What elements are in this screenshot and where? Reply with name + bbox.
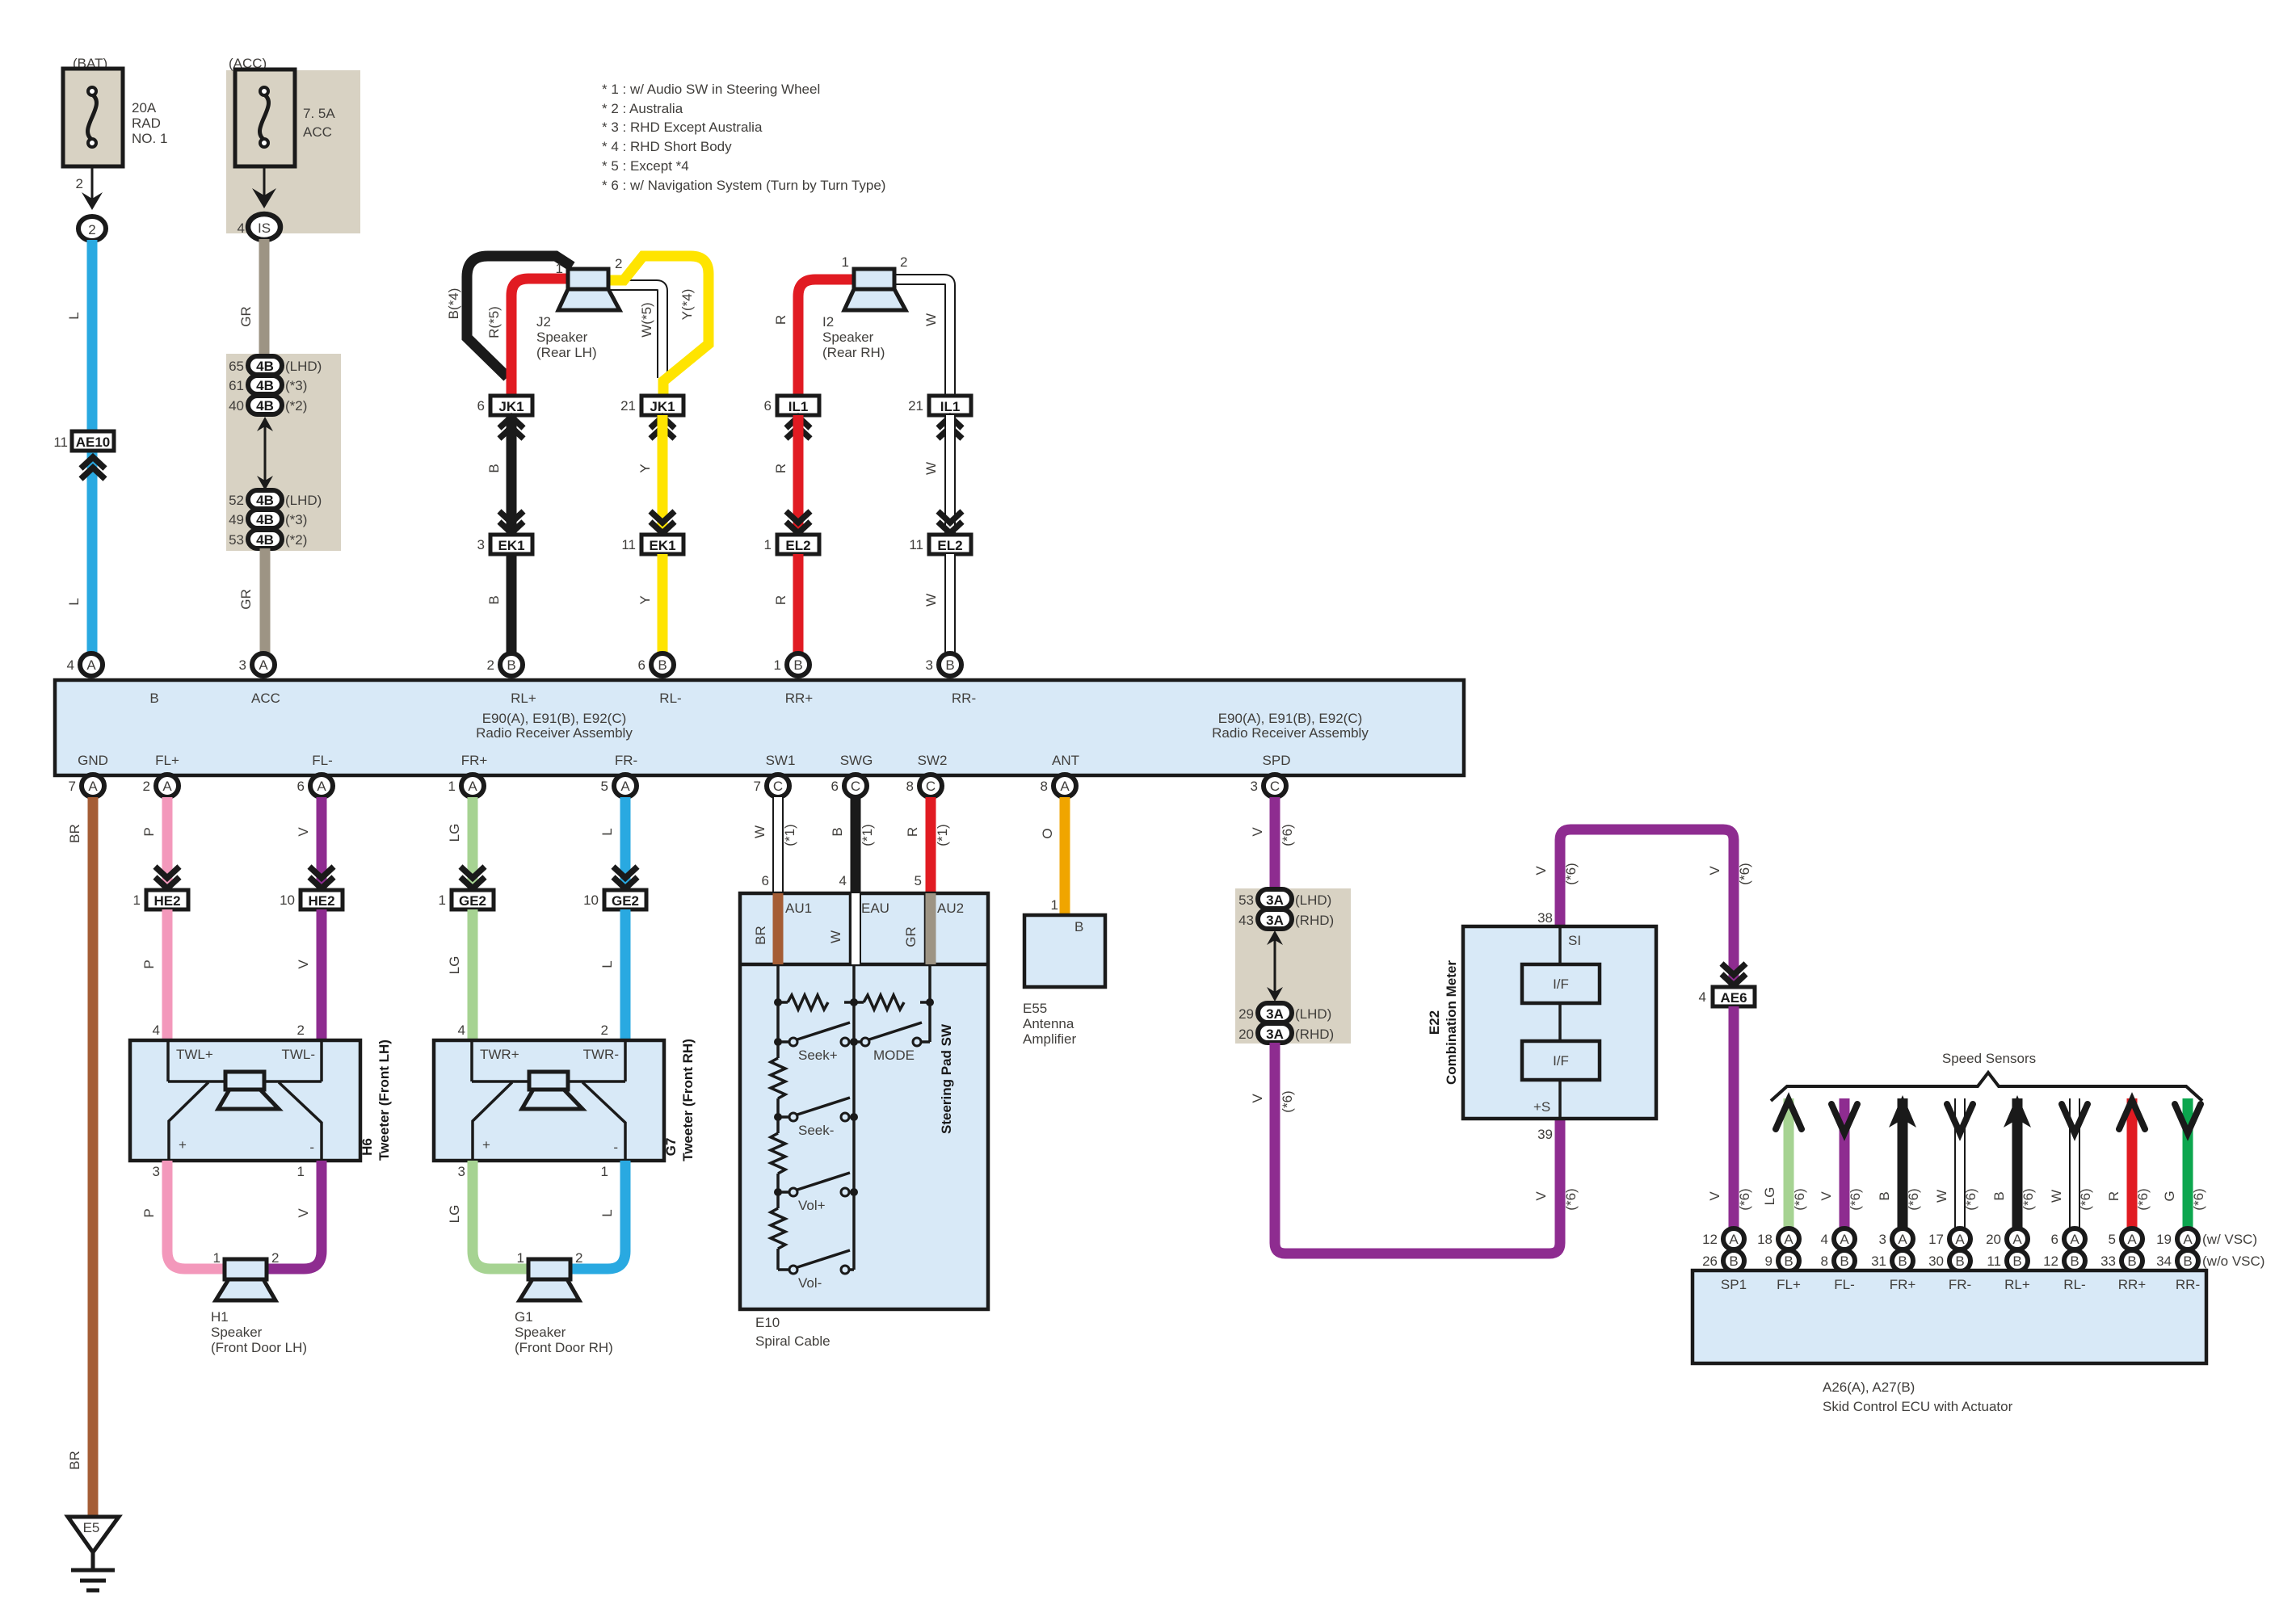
svg-text:(LHD): (LHD): [285, 493, 322, 508]
svg-text:4: 4: [238, 220, 245, 236]
svg-text:A: A: [1784, 1232, 1793, 1247]
svg-text:A: A: [2127, 1232, 2137, 1247]
svg-text:AU2: AU2: [937, 901, 964, 916]
svg-text:40: 40: [229, 398, 244, 414]
svg-text:Speaker: Speaker: [515, 1325, 566, 1340]
svg-text:* 1 : w/ Audio SW in Steering: * 1 : w/ Audio SW in Steering Wheel: [602, 82, 820, 97]
svg-text:(*1): (*1): [782, 824, 797, 846]
svg-text:ACC: ACC: [251, 691, 280, 706]
svg-text:11: 11: [909, 537, 923, 552]
svg-text:+: +: [179, 1137, 187, 1153]
svg-text:5: 5: [2109, 1232, 2116, 1247]
svg-text:Radio Receiver Assembly: Radio Receiver Assembly: [476, 725, 633, 741]
svg-text:3A: 3A: [1266, 913, 1284, 928]
svg-text:(*1): (*1): [935, 824, 950, 846]
svg-text:2: 2: [487, 657, 494, 673]
svg-text:2: 2: [900, 254, 907, 270]
svg-text:10: 10: [583, 892, 599, 908]
svg-text:V: V: [1707, 866, 1722, 876]
svg-text:Spiral Cable: Spiral Cable: [755, 1333, 831, 1349]
svg-text:Y: Y: [637, 464, 653, 472]
svg-text:(*6): (*6): [1792, 1188, 1807, 1210]
svg-text:21: 21: [908, 398, 923, 414]
svg-text:9: 9: [1765, 1254, 1772, 1269]
svg-text:BR: BR: [67, 824, 82, 843]
svg-text:L: L: [66, 598, 82, 605]
svg-text:B: B: [1991, 1191, 2007, 1200]
svg-text:B: B: [658, 657, 667, 673]
svg-text:4: 4: [1821, 1232, 1828, 1247]
svg-text:I2: I2: [822, 314, 834, 330]
svg-text:P: P: [141, 960, 157, 968]
svg-text:TWR+: TWR+: [480, 1047, 519, 1062]
svg-text:-: -: [309, 1140, 314, 1155]
svg-text:1: 1: [517, 1250, 524, 1266]
svg-text:AU1: AU1: [785, 901, 812, 916]
svg-text:(*6): (*6): [1563, 1188, 1579, 1210]
svg-text:4: 4: [839, 873, 847, 888]
svg-text:V: V: [296, 1208, 311, 1218]
svg-text:Radio Receiver Assembly: Radio Receiver Assembly: [1212, 725, 1369, 741]
svg-text:(Front Door LH): (Front Door LH): [211, 1340, 307, 1355]
svg-text:C: C: [773, 779, 783, 794]
svg-text:W: W: [828, 930, 843, 943]
svg-text:GE2: GE2: [612, 893, 639, 909]
svg-text:W: W: [923, 313, 939, 326]
svg-text:2: 2: [615, 256, 622, 271]
svg-text:B: B: [2183, 1254, 2192, 1269]
svg-text:(*3): (*3): [285, 512, 307, 527]
svg-text:RL-: RL-: [2063, 1277, 2085, 1292]
svg-text:65: 65: [229, 359, 244, 374]
svg-text:R: R: [773, 595, 788, 605]
svg-text:B: B: [793, 657, 802, 673]
svg-text:3: 3: [926, 657, 933, 673]
svg-text:B: B: [1784, 1254, 1793, 1269]
svg-text:4B: 4B: [256, 532, 274, 548]
svg-text:B: B: [945, 657, 954, 673]
svg-text:26: 26: [1702, 1254, 1718, 1269]
svg-text:+: +: [482, 1137, 490, 1153]
svg-text:1: 1: [133, 892, 141, 908]
svg-text:B: B: [149, 691, 158, 706]
svg-text:B: B: [2012, 1254, 2021, 1269]
svg-text:Antenna: Antenna: [1023, 1016, 1074, 1031]
svg-text:HE2: HE2: [153, 893, 180, 909]
svg-text:W: W: [2049, 1190, 2064, 1203]
svg-text:RL-: RL-: [659, 691, 681, 706]
svg-text:FL+: FL+: [155, 753, 179, 768]
svg-text:2: 2: [575, 1250, 582, 1266]
svg-text:BR: BR: [67, 1451, 82, 1470]
svg-text:(*6): (*6): [1963, 1188, 1979, 1210]
svg-text:FL-: FL-: [1834, 1277, 1855, 1292]
svg-text:A: A: [317, 779, 326, 794]
svg-text:21: 21: [620, 398, 636, 414]
svg-text:6: 6: [762, 873, 769, 888]
svg-text:29: 29: [1238, 1006, 1254, 1022]
svg-text:7: 7: [754, 779, 761, 794]
svg-text:A: A: [620, 779, 630, 794]
svg-text:BR: BR: [753, 926, 768, 945]
svg-text:V: V: [1533, 866, 1549, 876]
svg-text:R(*5): R(*5): [486, 306, 502, 338]
svg-text:RR+: RR+: [2118, 1277, 2147, 1292]
svg-text:(LHD): (LHD): [1295, 892, 1331, 908]
svg-text:-: -: [613, 1140, 618, 1155]
svg-text:A: A: [1729, 1232, 1739, 1247]
svg-text:B: B: [1955, 1254, 1964, 1269]
svg-text:Speaker: Speaker: [536, 330, 588, 345]
svg-text:B: B: [830, 827, 845, 836]
svg-text:E10: E10: [755, 1315, 780, 1330]
svg-text:AE6: AE6: [1720, 990, 1747, 1006]
svg-text:B: B: [2070, 1254, 2079, 1269]
svg-text:Skid Control ECU with Actuator: Skid Control ECU with Actuator: [1823, 1399, 2013, 1414]
svg-text:(RHD): (RHD): [1295, 913, 1334, 928]
svg-text:Y: Y: [637, 595, 653, 604]
svg-text:NO. 1: NO. 1: [132, 131, 167, 146]
svg-text:E55: E55: [1023, 1001, 1047, 1016]
svg-text:1: 1: [439, 892, 446, 908]
svg-text:* 5 : Except *4: * 5 : Except *4: [602, 158, 689, 174]
svg-text:TWL-: TWL-: [281, 1047, 315, 1062]
svg-text:53: 53: [1238, 892, 1254, 908]
svg-text:(*6): (*6): [2078, 1188, 2093, 1210]
svg-text:FR+: FR+: [1890, 1277, 1916, 1292]
svg-text:A: A: [2070, 1232, 2079, 1247]
svg-text:Seek+: Seek+: [798, 1048, 838, 1063]
svg-text:3A: 3A: [1266, 892, 1284, 908]
svg-text:RR+: RR+: [785, 691, 814, 706]
svg-text:HE2: HE2: [308, 893, 334, 909]
svg-text:SW2: SW2: [918, 753, 948, 768]
svg-text:L: L: [66, 312, 82, 319]
svg-text:GR: GR: [238, 306, 254, 327]
svg-text:G: G: [2162, 1191, 2177, 1201]
svg-text:C: C: [851, 779, 860, 794]
svg-text:53: 53: [229, 532, 244, 548]
svg-text:Speaker: Speaker: [211, 1325, 263, 1340]
svg-text:R: R: [773, 315, 788, 325]
svg-text:FR-: FR-: [615, 753, 637, 768]
svg-text:34: 34: [2156, 1254, 2172, 1269]
svg-text:A: A: [1898, 1232, 1907, 1247]
svg-text:3A: 3A: [1266, 1006, 1284, 1022]
svg-text:G7: G7: [663, 1138, 679, 1157]
svg-text:IL1: IL1: [788, 399, 809, 414]
svg-text:12: 12: [2043, 1254, 2058, 1269]
svg-text:GR: GR: [238, 589, 254, 610]
svg-text:1: 1: [448, 779, 456, 794]
svg-text:4B: 4B: [256, 493, 274, 508]
svg-text:JK1: JK1: [650, 399, 675, 414]
svg-text:(w/o VSC): (w/o VSC): [2202, 1254, 2264, 1269]
svg-text:R: R: [2106, 1191, 2121, 1201]
svg-text:38: 38: [1537, 910, 1553, 926]
svg-text:1: 1: [213, 1250, 221, 1266]
svg-text:49: 49: [229, 512, 244, 527]
svg-text:FR+: FR+: [461, 753, 488, 768]
svg-text:V: V: [1819, 1191, 1834, 1201]
svg-text:B: B: [1729, 1254, 1738, 1269]
svg-text:(*6): (*6): [1280, 824, 1295, 846]
svg-text:A: A: [468, 779, 477, 794]
svg-text:ANT: ANT: [1052, 753, 1079, 768]
svg-text:(*2): (*2): [285, 532, 307, 548]
svg-text:E22: E22: [1427, 1010, 1442, 1035]
svg-text:3: 3: [458, 1164, 465, 1179]
svg-text:* 6 : w/ Navigation System (Tu: * 6 : w/ Navigation System (Turn by Turn…: [602, 178, 885, 193]
svg-text:C: C: [1270, 779, 1280, 794]
svg-text:E90(A), E91(B), E92(C): E90(A), E91(B), E92(C): [482, 711, 627, 726]
svg-text:(*1): (*1): [860, 824, 875, 846]
svg-text:V: V: [1707, 1191, 1722, 1201]
svg-text:4: 4: [1699, 989, 1706, 1005]
svg-text:10: 10: [280, 892, 295, 908]
svg-text:W: W: [923, 594, 939, 607]
svg-text:V: V: [1250, 827, 1265, 837]
svg-text:(*6): (*6): [1906, 1188, 1921, 1210]
svg-text:B: B: [1877, 1191, 1892, 1200]
svg-text:TWR-: TWR-: [583, 1047, 619, 1062]
svg-text:39: 39: [1537, 1127, 1553, 1142]
svg-text:12: 12: [1702, 1232, 1718, 1247]
svg-text:A: A: [86, 657, 96, 673]
svg-text:EL2: EL2: [937, 538, 962, 553]
svg-text:3: 3: [477, 537, 485, 552]
svg-text:19: 19: [2156, 1232, 2172, 1247]
svg-text:20: 20: [1238, 1027, 1254, 1042]
svg-text:3A: 3A: [1266, 1027, 1284, 1042]
svg-text:A: A: [2183, 1232, 2193, 1247]
svg-text:11: 11: [621, 537, 636, 552]
svg-text:W: W: [1934, 1190, 1949, 1203]
svg-text:FR-: FR-: [1949, 1277, 1971, 1292]
svg-text:2: 2: [88, 222, 95, 237]
svg-text:L: L: [599, 1209, 615, 1216]
svg-text:4: 4: [67, 657, 74, 673]
svg-text:Tweeter (Front LH): Tweeter (Front LH): [376, 1039, 392, 1161]
svg-text:EL2: EL2: [785, 538, 810, 553]
svg-text:Y(*4): Y(*4): [679, 289, 695, 321]
svg-text:A: A: [1955, 1232, 1965, 1247]
svg-text:3: 3: [1879, 1232, 1886, 1247]
svg-text:6: 6: [297, 779, 305, 794]
svg-text:2: 2: [271, 1250, 279, 1266]
svg-text:4B: 4B: [256, 378, 274, 393]
svg-text:L: L: [599, 960, 615, 968]
svg-text:4B: 4B: [256, 512, 274, 527]
svg-text:4: 4: [458, 1023, 465, 1038]
svg-text:6: 6: [764, 398, 772, 414]
svg-text:(*6): (*6): [2021, 1188, 2036, 1210]
svg-text:4B: 4B: [256, 398, 274, 414]
svg-text:E90(A), E91(B), E92(C): E90(A), E91(B), E92(C): [1218, 711, 1363, 726]
svg-text:Speed Sensors: Speed Sensors: [1942, 1051, 2036, 1066]
svg-text:IL1: IL1: [940, 399, 961, 414]
svg-text:(*6): (*6): [1737, 863, 1752, 884]
svg-text:8: 8: [1821, 1254, 1828, 1269]
svg-text:LG: LG: [1762, 1187, 1777, 1206]
svg-text:43: 43: [1238, 913, 1254, 928]
svg-text:R: R: [905, 827, 920, 837]
svg-text:31: 31: [1871, 1254, 1886, 1269]
svg-text:5: 5: [601, 779, 608, 794]
svg-text:MODE: MODE: [873, 1048, 915, 1063]
svg-text:RR-: RR-: [2176, 1277, 2200, 1292]
svg-text:A: A: [259, 657, 268, 673]
svg-text:18: 18: [1757, 1232, 1772, 1247]
svg-text:3: 3: [1251, 779, 1258, 794]
svg-text:33: 33: [2100, 1254, 2116, 1269]
svg-text:IS: IS: [258, 220, 271, 236]
svg-text:SP1: SP1: [1721, 1277, 1747, 1292]
svg-text:(Rear RH): (Rear RH): [822, 345, 885, 360]
svg-text:11: 11: [1987, 1254, 2001, 1269]
svg-text:I/F: I/F: [1553, 976, 1569, 992]
svg-text:B: B: [1074, 919, 1083, 934]
svg-text:1: 1: [774, 657, 781, 673]
svg-text:(*6): (*6): [1563, 863, 1579, 884]
svg-text:(*6): (*6): [1280, 1090, 1295, 1112]
svg-text:EAU: EAU: [861, 901, 889, 916]
svg-text:V: V: [296, 960, 311, 969]
svg-text:G1: G1: [515, 1309, 533, 1325]
svg-text:Seek-: Seek-: [798, 1123, 834, 1138]
svg-text:(LHD): (LHD): [285, 359, 322, 374]
svg-text:ACC: ACC: [303, 124, 332, 140]
svg-text:Speaker: Speaker: [822, 330, 874, 345]
svg-text:6: 6: [2051, 1232, 2058, 1247]
svg-text:R: R: [773, 464, 788, 473]
svg-text:GR: GR: [903, 926, 919, 947]
svg-text:B(*4): B(*4): [446, 288, 461, 320]
svg-text:1: 1: [764, 537, 772, 552]
svg-text:SWG: SWG: [840, 753, 873, 768]
svg-text:B: B: [1840, 1254, 1848, 1269]
svg-text:E5: E5: [83, 1520, 100, 1535]
svg-text:H6: H6: [360, 1138, 375, 1156]
svg-text:RL+: RL+: [511, 691, 536, 706]
svg-text:(*3): (*3): [285, 378, 307, 393]
svg-text:6: 6: [831, 779, 839, 794]
svg-text:2: 2: [76, 176, 83, 191]
svg-text:30: 30: [1928, 1254, 1944, 1269]
svg-text:EK1: EK1: [649, 538, 675, 553]
svg-text:2: 2: [601, 1023, 608, 1038]
svg-text:1: 1: [601, 1164, 608, 1179]
svg-text:P: P: [141, 1208, 157, 1217]
svg-text:(*6): (*6): [2191, 1188, 2206, 1210]
svg-text:Vol+: Vol+: [798, 1198, 826, 1213]
svg-text:A26(A), A27(B): A26(A), A27(B): [1823, 1380, 1915, 1395]
svg-text:B: B: [486, 595, 502, 604]
svg-text:O: O: [1040, 828, 1055, 838]
svg-text:W(*5): W(*5): [639, 302, 654, 337]
svg-text:B: B: [1898, 1254, 1907, 1269]
svg-text:2: 2: [143, 779, 150, 794]
svg-text:FL-: FL-: [312, 753, 333, 768]
svg-text:4: 4: [153, 1023, 160, 1038]
svg-text:(Rear LH): (Rear LH): [536, 345, 597, 360]
svg-text:Steering Pad SW: Steering Pad SW: [939, 1023, 954, 1134]
svg-text:11: 11: [53, 435, 68, 450]
svg-text:Vol-: Vol-: [798, 1275, 822, 1291]
svg-text:(LHD): (LHD): [1295, 1006, 1331, 1022]
svg-text:LG: LG: [447, 824, 462, 842]
svg-text:3: 3: [153, 1164, 160, 1179]
svg-text:AE10: AE10: [76, 435, 111, 450]
svg-text:FL+: FL+: [1777, 1277, 1801, 1292]
svg-text:20: 20: [1986, 1232, 2001, 1247]
svg-text:17: 17: [1928, 1232, 1944, 1247]
svg-text:RL+: RL+: [2004, 1277, 2030, 1292]
svg-text:B: B: [507, 657, 515, 673]
svg-text:Combination Meter: Combination Meter: [1444, 960, 1459, 1085]
svg-text:V: V: [296, 827, 311, 837]
svg-text:LG: LG: [447, 956, 462, 975]
svg-text:L: L: [599, 828, 615, 835]
svg-text:7. 5A: 7. 5A: [303, 106, 335, 121]
svg-text:W: W: [752, 825, 767, 838]
svg-text:B: B: [486, 464, 502, 472]
svg-text:1: 1: [297, 1164, 305, 1179]
svg-text:20A: 20A: [132, 100, 157, 115]
svg-text:6: 6: [477, 398, 485, 414]
svg-text:B: B: [2127, 1254, 2136, 1269]
svg-text:P: P: [141, 827, 157, 836]
svg-text:A: A: [2012, 1232, 2022, 1247]
svg-text:SW1: SW1: [766, 753, 796, 768]
svg-text:(*6): (*6): [2135, 1188, 2151, 1210]
svg-text:A: A: [1060, 779, 1070, 794]
svg-text:W: W: [923, 462, 939, 475]
svg-text:* 3 : RHD Except Australia: * 3 : RHD Except Australia: [602, 120, 763, 135]
svg-text:8: 8: [1041, 779, 1048, 794]
svg-text:8: 8: [906, 779, 914, 794]
svg-text:Tweeter (Front RH): Tweeter (Front RH): [680, 1039, 696, 1161]
svg-text:H1: H1: [211, 1309, 229, 1325]
svg-text:(Front Door RH): (Front Door RH): [515, 1340, 613, 1355]
svg-text:RAD: RAD: [132, 115, 161, 131]
svg-text:A: A: [1840, 1232, 1849, 1247]
svg-text:61: 61: [229, 378, 244, 393]
svg-text:V: V: [1250, 1094, 1265, 1103]
svg-text:1: 1: [1051, 897, 1058, 913]
svg-text:(RHD): (RHD): [1295, 1027, 1334, 1042]
svg-text:(*6): (*6): [1737, 1188, 1752, 1210]
svg-text:GE2: GE2: [459, 893, 486, 909]
svg-text:6: 6: [638, 657, 645, 673]
svg-text:SPD: SPD: [1263, 753, 1291, 768]
svg-text:TWL+: TWL+: [176, 1047, 213, 1062]
svg-text:4B: 4B: [256, 359, 274, 374]
svg-text:Amplifier: Amplifier: [1023, 1031, 1076, 1047]
svg-text:(*2): (*2): [285, 398, 307, 414]
svg-text:A: A: [162, 779, 172, 794]
svg-text:3: 3: [239, 657, 246, 673]
svg-text:(w/ VSC): (w/ VSC): [2202, 1232, 2257, 1247]
svg-text:C: C: [926, 779, 936, 794]
svg-text:SI: SI: [1568, 933, 1581, 948]
svg-text:LG: LG: [447, 1205, 462, 1224]
svg-text:1: 1: [842, 254, 849, 270]
svg-text:* 4 : RHD Short Body: * 4 : RHD Short Body: [602, 139, 732, 154]
svg-text:V: V: [1533, 1191, 1549, 1201]
svg-text:1: 1: [556, 261, 563, 276]
svg-text:RR-: RR-: [952, 691, 976, 706]
